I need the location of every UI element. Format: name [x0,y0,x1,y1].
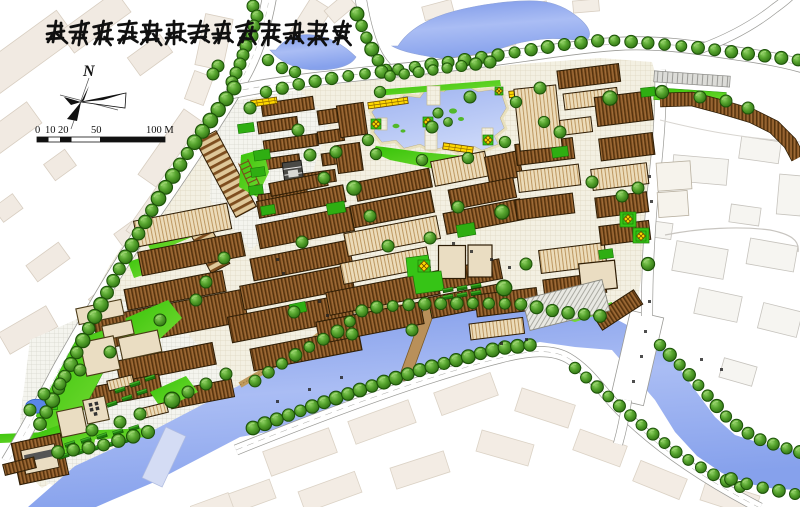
svg-text:N: N [82,63,96,80]
svg-text:10: 10 [45,125,56,136]
svg-text:0: 0 [35,125,40,136]
svg-text:100 M: 100 M [146,125,174,136]
svg-text:50: 50 [91,125,102,136]
svg-text:20: 20 [58,125,69,136]
